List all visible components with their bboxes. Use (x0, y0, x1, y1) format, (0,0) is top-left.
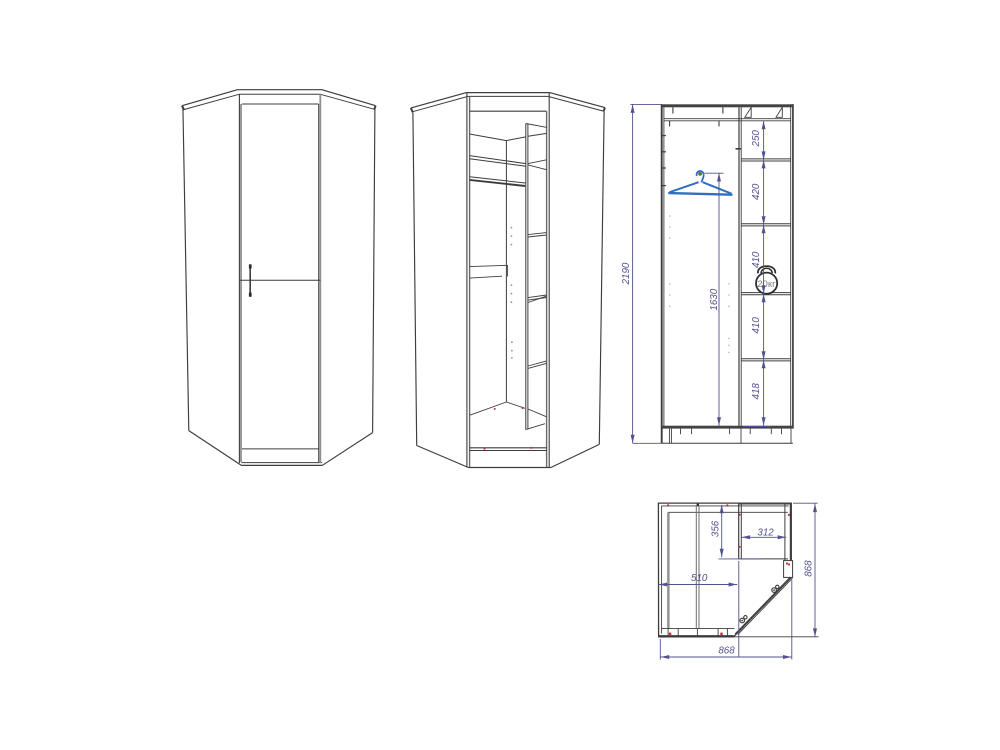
svg-text:20кг: 20кг (757, 279, 776, 290)
svg-text:510: 510 (691, 573, 708, 584)
svg-text:418: 418 (751, 383, 762, 400)
svg-text:1630: 1630 (709, 288, 720, 310)
svg-text:868: 868 (718, 646, 735, 657)
svg-text:2190: 2190 (621, 262, 632, 285)
svg-text:356: 356 (711, 520, 722, 537)
svg-text:868: 868 (803, 560, 814, 577)
svg-text:410: 410 (751, 317, 762, 334)
svg-text:420: 420 (751, 183, 762, 200)
svg-text:312: 312 (757, 527, 774, 538)
svg-text:250: 250 (751, 130, 762, 148)
svg-text:410: 410 (751, 251, 762, 268)
